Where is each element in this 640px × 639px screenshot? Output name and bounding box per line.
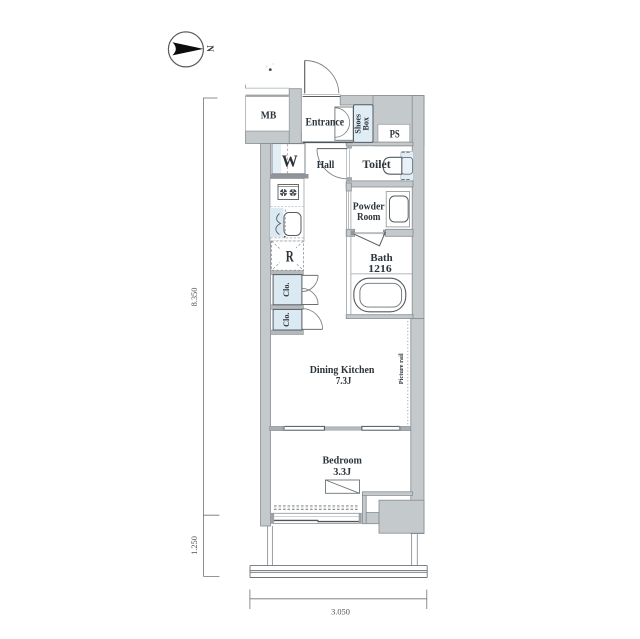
svg-text:Box: Box (361, 117, 370, 130)
svg-text:PS: PS (390, 129, 400, 141)
svg-text:Room: Room (357, 212, 381, 223)
svg-text:Picture rail: Picture rail (398, 353, 405, 384)
svg-text:3.050: 3.050 (331, 608, 350, 617)
svg-text:Dining Kitchen: Dining Kitchen (310, 364, 375, 376)
svg-text:Clo.: Clo. (282, 283, 291, 297)
svg-text:Entrance: Entrance (306, 114, 345, 128)
svg-text:8.350: 8.350 (190, 288, 199, 307)
svg-text:Hall: Hall (317, 159, 335, 171)
svg-text:7.3J: 7.3J (336, 375, 352, 387)
svg-text:1.250: 1.250 (190, 536, 199, 555)
svg-text:Toilet: Toilet (362, 157, 390, 171)
svg-text:Bedroom: Bedroom (322, 454, 362, 466)
svg-text:W: W (282, 151, 298, 170)
svg-text:N: N (205, 45, 215, 52)
svg-text:R: R (286, 248, 294, 265)
svg-text:3.3J: 3.3J (333, 466, 352, 478)
svg-text:1216: 1216 (368, 263, 392, 275)
svg-text:Powder: Powder (353, 201, 385, 212)
svg-text:MB: MB (261, 111, 277, 122)
svg-text:Clo.: Clo. (282, 313, 291, 327)
